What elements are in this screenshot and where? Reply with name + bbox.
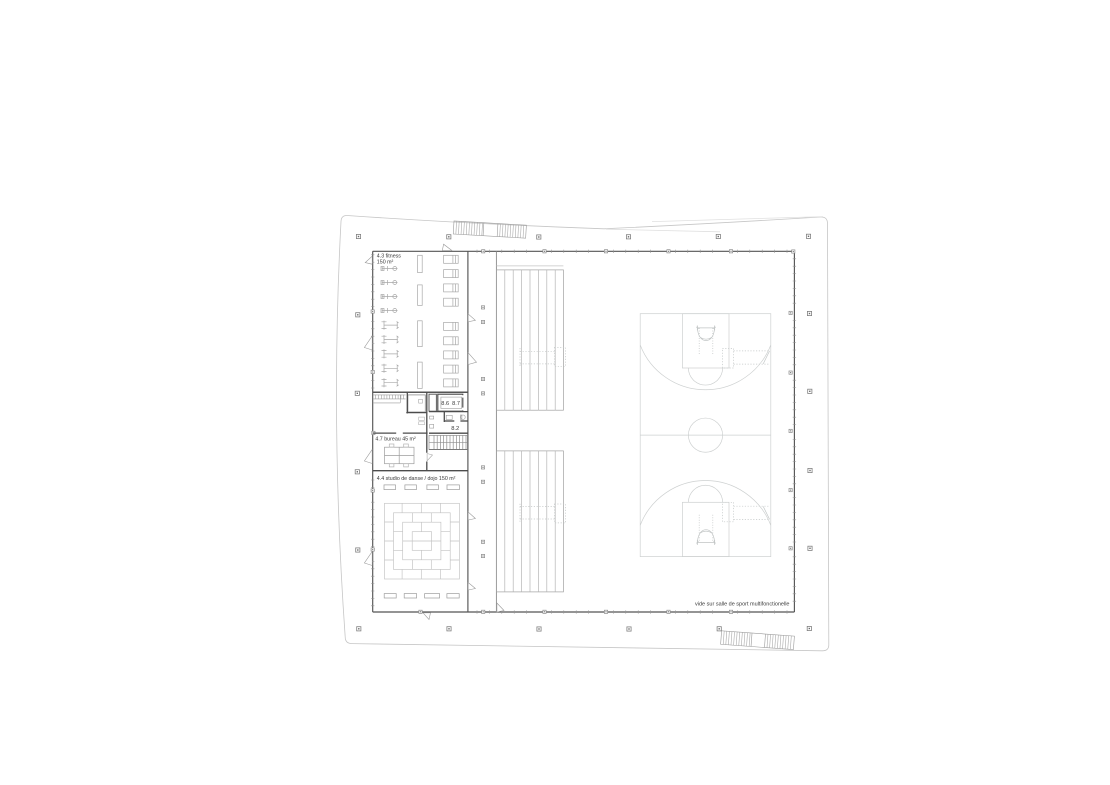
svg-text:8.2: 8.2 [451, 426, 459, 432]
svg-text:4.7 bureau 45 m²: 4.7 bureau 45 m² [375, 437, 416, 443]
svg-text:vide sur salle de sport multif: vide sur salle de sport multifonctionell… [695, 601, 789, 607]
svg-text:8.6 8.7: 8.6 8.7 [441, 401, 460, 407]
svg-text:150 m²: 150 m² [377, 259, 394, 265]
svg-text:4.4 studio de danse / dojo 15: 4.4 studio de danse / dojo 150 m² [377, 476, 456, 482]
